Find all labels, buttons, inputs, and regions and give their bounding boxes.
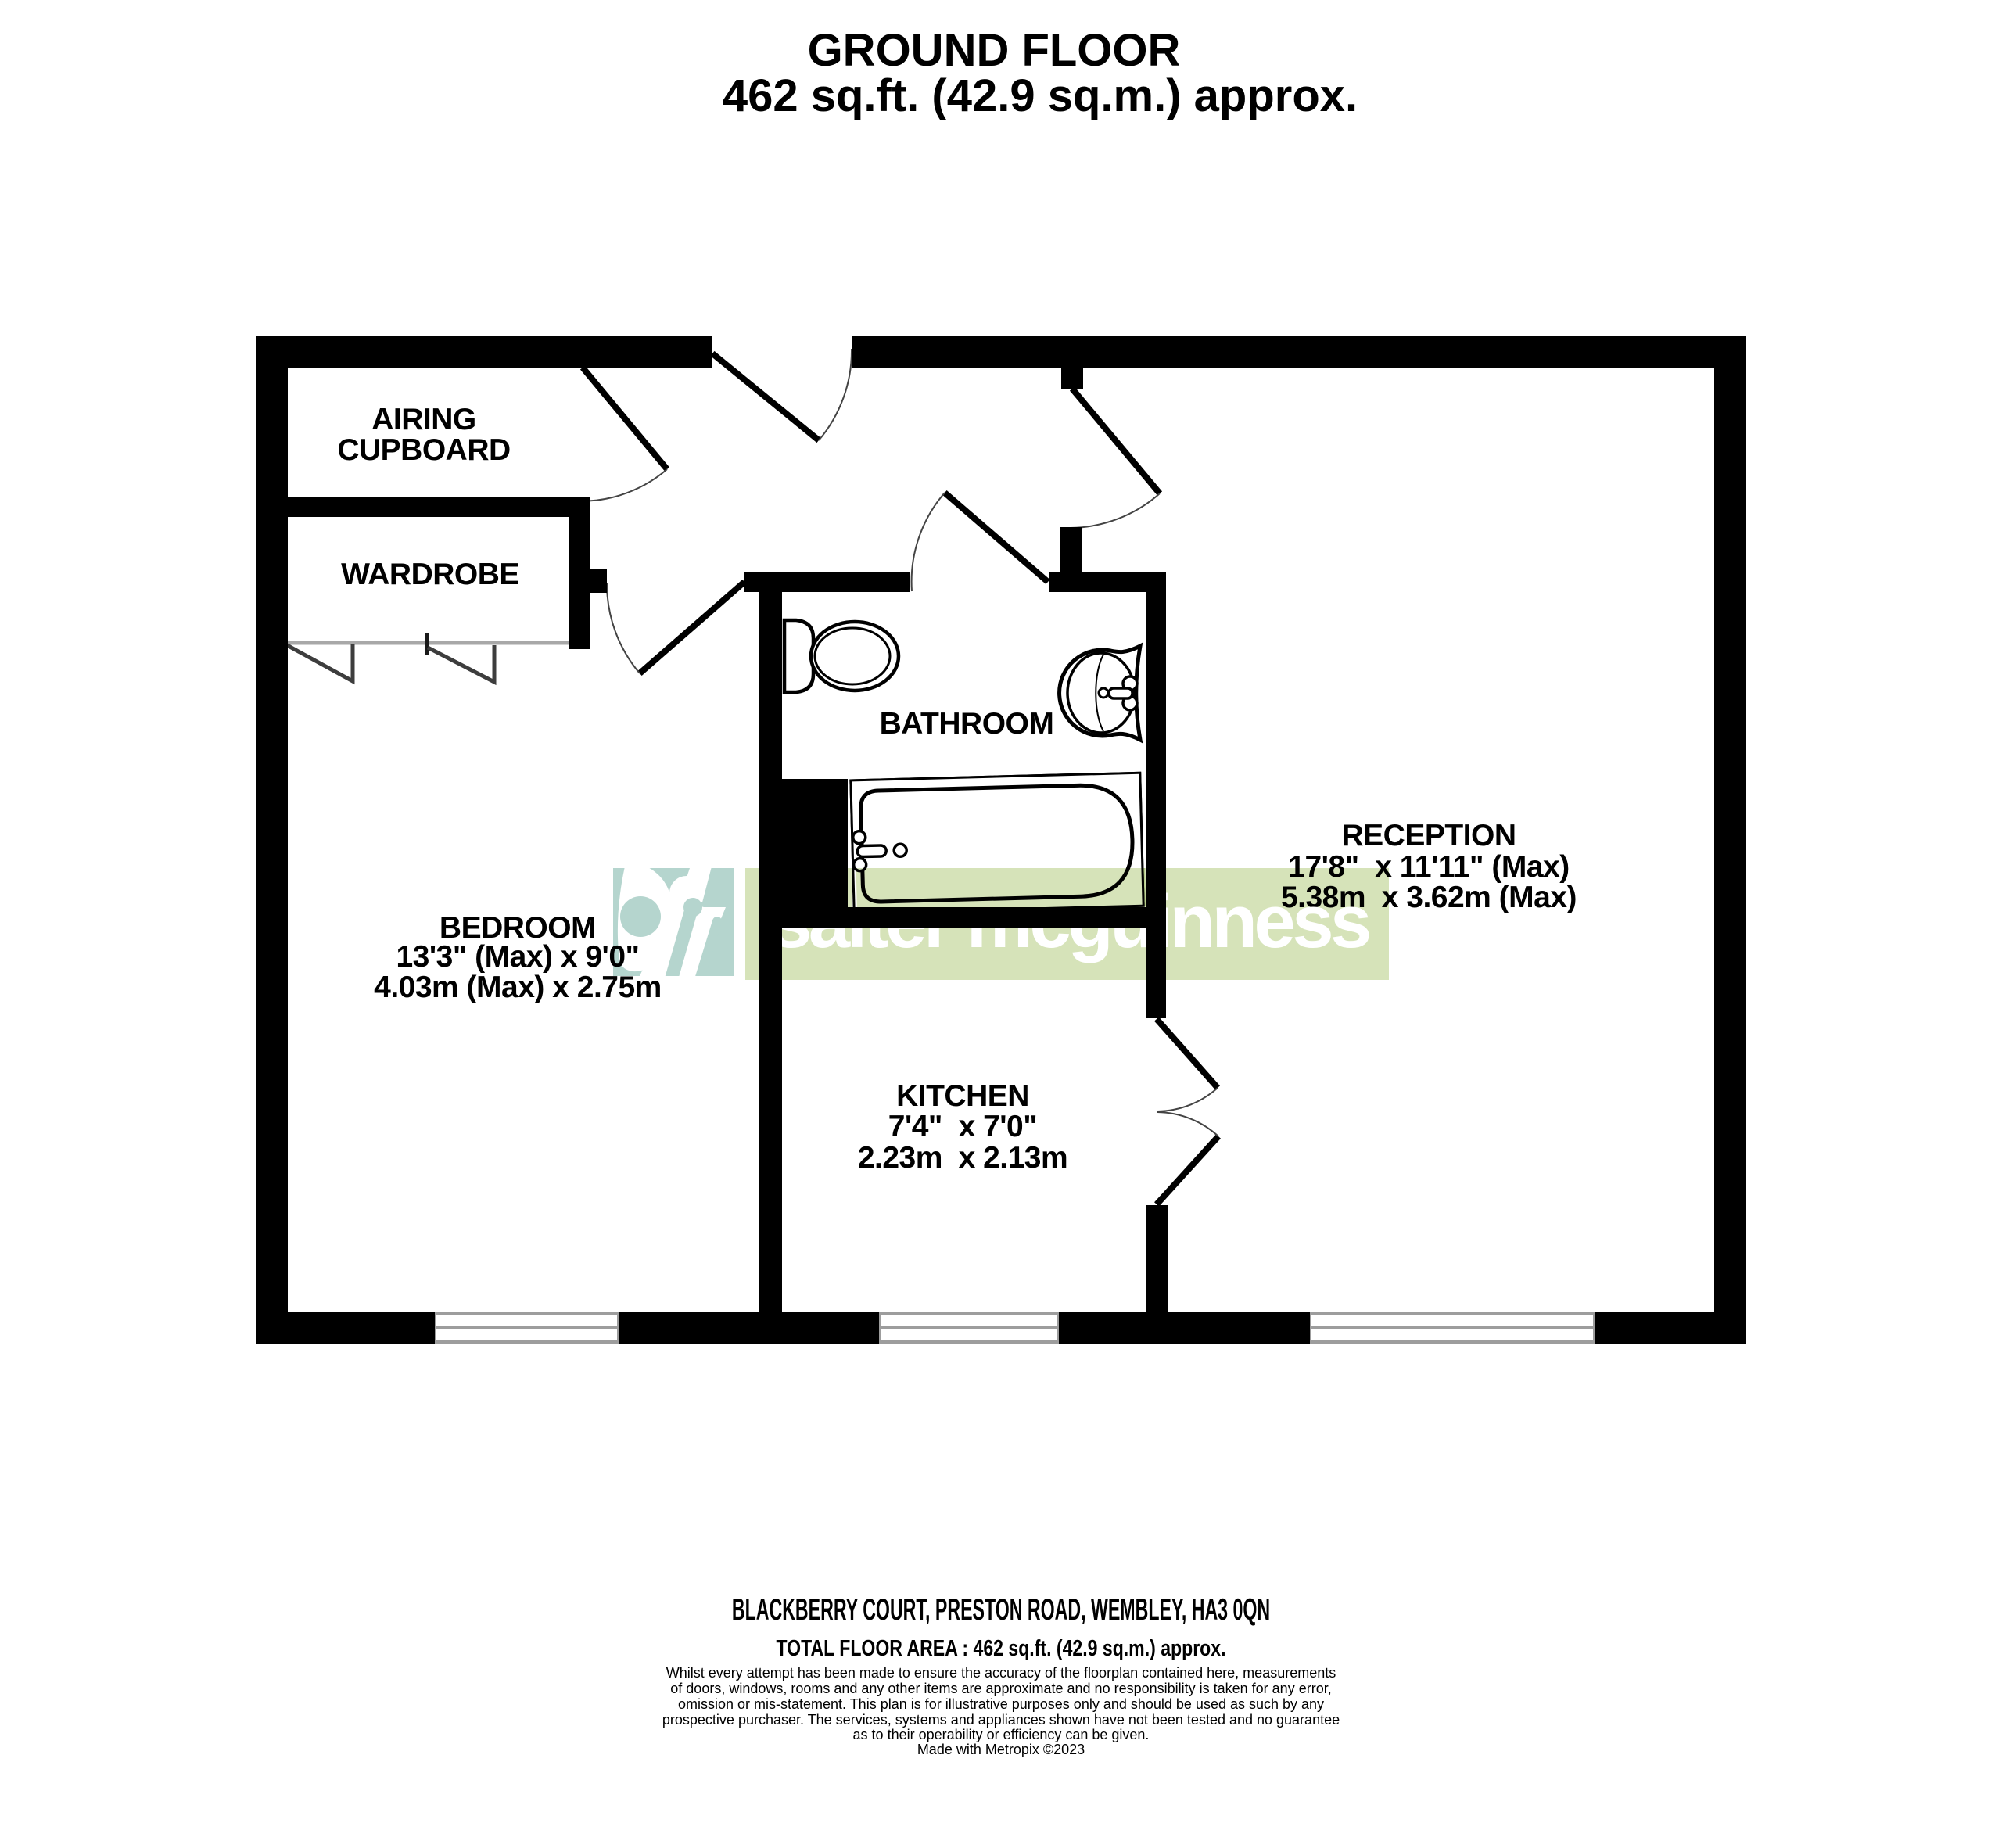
svg-text:RECEPTION: RECEPTION (1341, 819, 1516, 852)
svg-text:GROUND FLOOR: GROUND FLOOR (808, 25, 1181, 76)
svg-text:omission or mis-statement. Thi: omission or mis-statement. This plan is … (678, 1696, 1324, 1712)
svg-text:13'3" (Max) x 9'0": 13'3" (Max) x 9'0" (396, 940, 639, 974)
svg-text:of doors, windows, rooms and a: of doors, windows, rooms and any other i… (670, 1681, 1331, 1696)
svg-text:BATHROOM: BATHROOM (880, 707, 1054, 741)
svg-text:Whilst every attempt has been: Whilst every attempt has been made to en… (666, 1665, 1336, 1681)
svg-text:2.23m x 2.13m: 2.23m x 2.13m (858, 1141, 1067, 1175)
svg-text:BLACKBERRY COURT, PRESTON ROAD: BLACKBERRY COURT, PRESTON ROAD, WEMBLEY,… (732, 1592, 1270, 1627)
svg-text:7'4" x 7'0": 7'4" x 7'0" (888, 1110, 1038, 1143)
svg-text:AIRING: AIRING (371, 403, 476, 436)
svg-text:KITCHEN: KITCHEN (896, 1079, 1029, 1113)
svg-text:TOTAL FLOOR AREA : 462 sq.ft.: TOTAL FLOOR AREA : 462 sq.ft. (42.9 sq.m… (776, 1634, 1225, 1660)
svg-text:4.03m (Max) x 2.75m: 4.03m (Max) x 2.75m (374, 971, 662, 1004)
svg-text:prospective purchaser. The ser: prospective purchaser. The services, sys… (662, 1712, 1340, 1728)
svg-text:WARDROBE: WARDROBE (341, 558, 519, 591)
svg-text:as to their operability or eff: as to their operability or efficiency ca… (853, 1727, 1150, 1742)
svg-text:Made with Metropix ©2023: Made with Metropix ©2023 (917, 1742, 1085, 1757)
svg-text:462 sq.ft. (42.9 sq.m.) approx: 462 sq.ft. (42.9 sq.m.) approx. (723, 70, 1358, 121)
svg-text:CUPBOARD: CUPBOARD (337, 433, 510, 467)
